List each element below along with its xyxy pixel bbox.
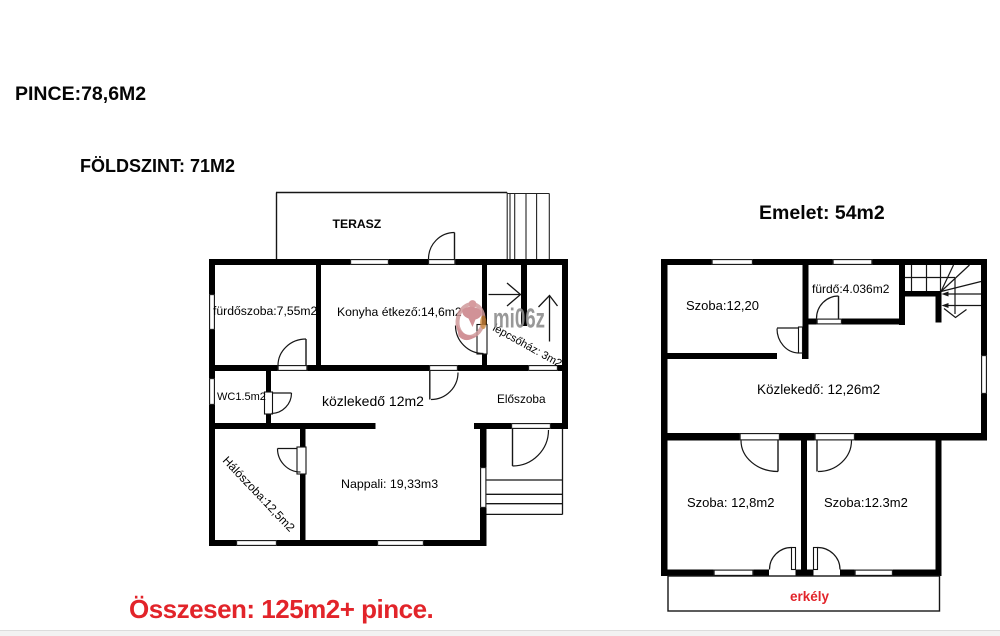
svg-text:Konyha étkező:14,6m2: Konyha étkező:14,6m2: [337, 305, 462, 319]
svg-text:közlekedő 12m2: közlekedő 12m2: [322, 393, 424, 409]
svg-text:mi06z: mi06z: [493, 303, 545, 334]
svg-text:Nappali: 19,33m3: Nappali: 19,33m3: [341, 477, 438, 491]
svg-text:Összesen: 125m2+ pince.: Összesen: 125m2+ pince.: [129, 594, 433, 624]
svg-text:TERASZ: TERASZ: [333, 217, 382, 231]
svg-text:Szoba:12,20: Szoba:12,20: [686, 298, 759, 313]
svg-text:fürdőszoba:7,55m2: fürdőszoba:7,55m2: [213, 304, 318, 318]
svg-text:PINCE:78,6M2: PINCE:78,6M2: [15, 83, 146, 105]
svg-text:FÖLDSZINT: 71M2: FÖLDSZINT: 71M2: [80, 156, 235, 176]
svg-text:Előszoba: Előszoba: [497, 392, 546, 406]
svg-text:erkély: erkély: [790, 589, 830, 604]
svg-text:Szoba: 12,8m2: Szoba: 12,8m2: [687, 495, 774, 510]
svg-text:WC1.5m2: WC1.5m2: [217, 391, 266, 403]
svg-text:fürdő:4.036m2: fürdő:4.036m2: [812, 282, 890, 296]
svg-text:Közlekedő: 12,26m2: Közlekedő: 12,26m2: [757, 382, 880, 397]
svg-text:Emelet: 54m2: Emelet: 54m2: [759, 202, 885, 224]
svg-text:Szoba:12.3m2: Szoba:12.3m2: [824, 495, 908, 510]
